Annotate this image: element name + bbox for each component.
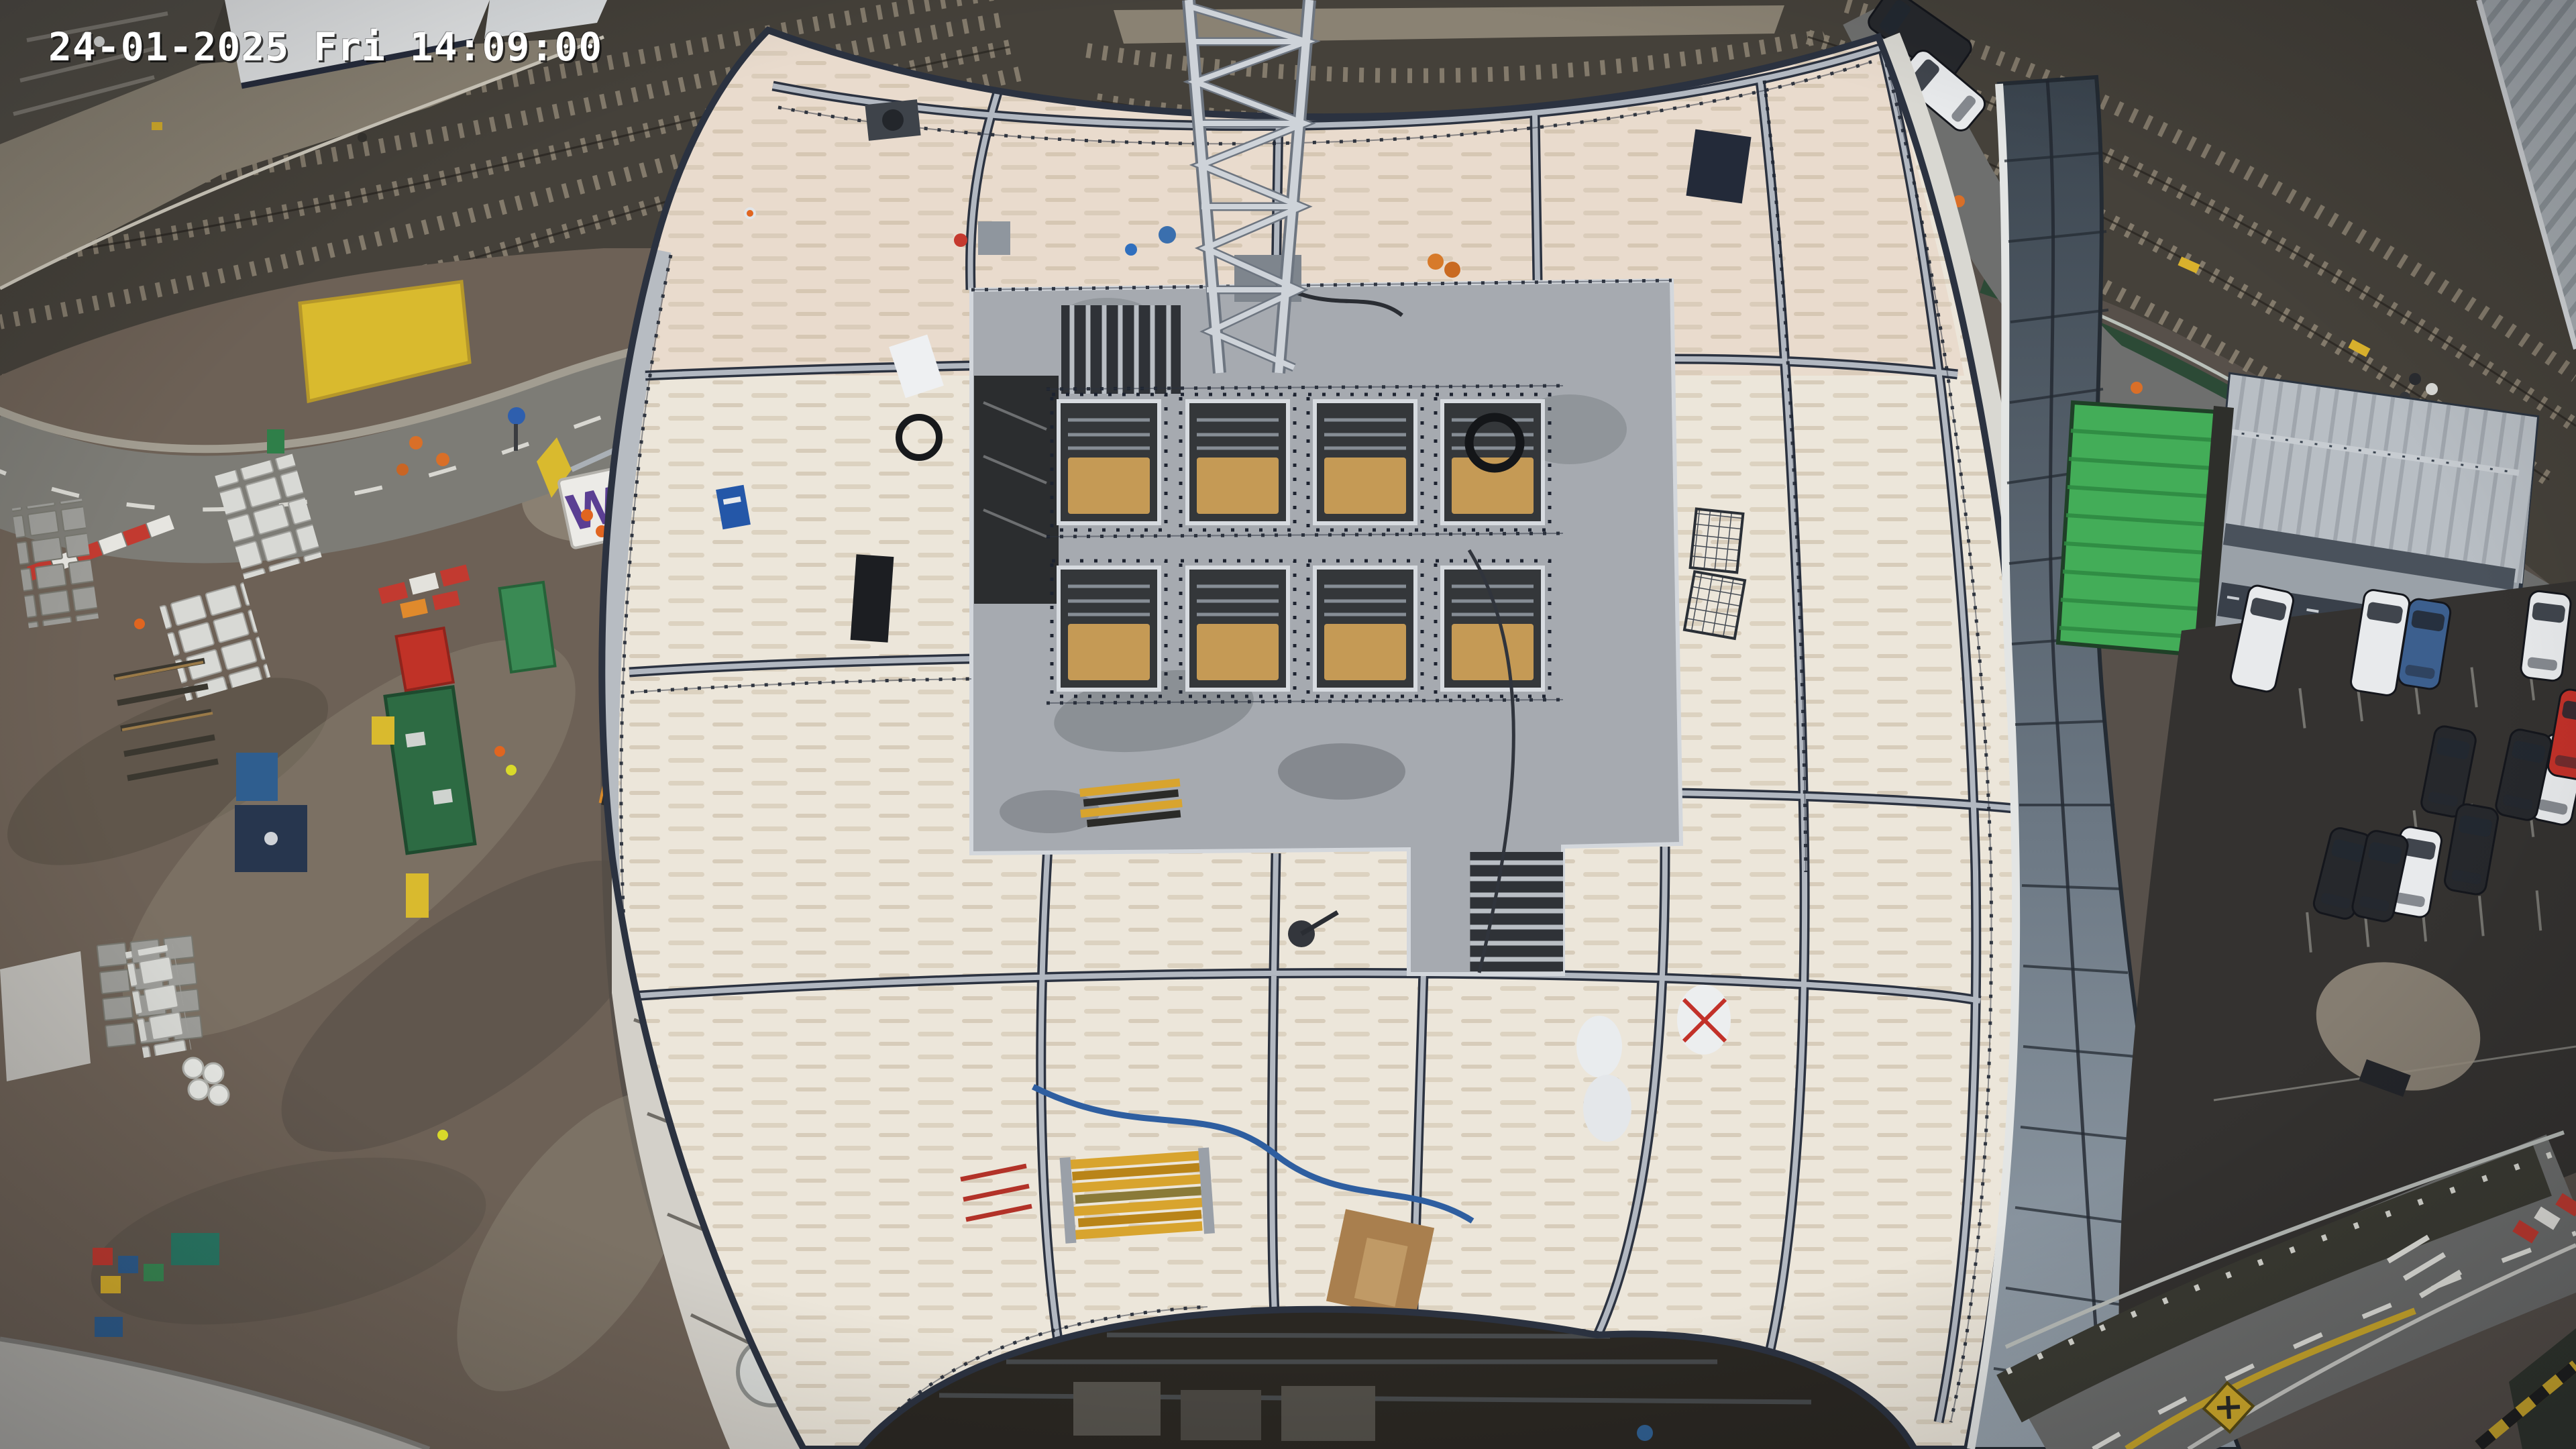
timestamp-overlay: 24-01-2025 Fri 14:09:00 (48, 24, 602, 70)
lens-vignette (0, 0, 2576, 1449)
construction-site-photo: W (0, 0, 2576, 1449)
cctv-construction-camera-frame: W (0, 0, 2576, 1449)
